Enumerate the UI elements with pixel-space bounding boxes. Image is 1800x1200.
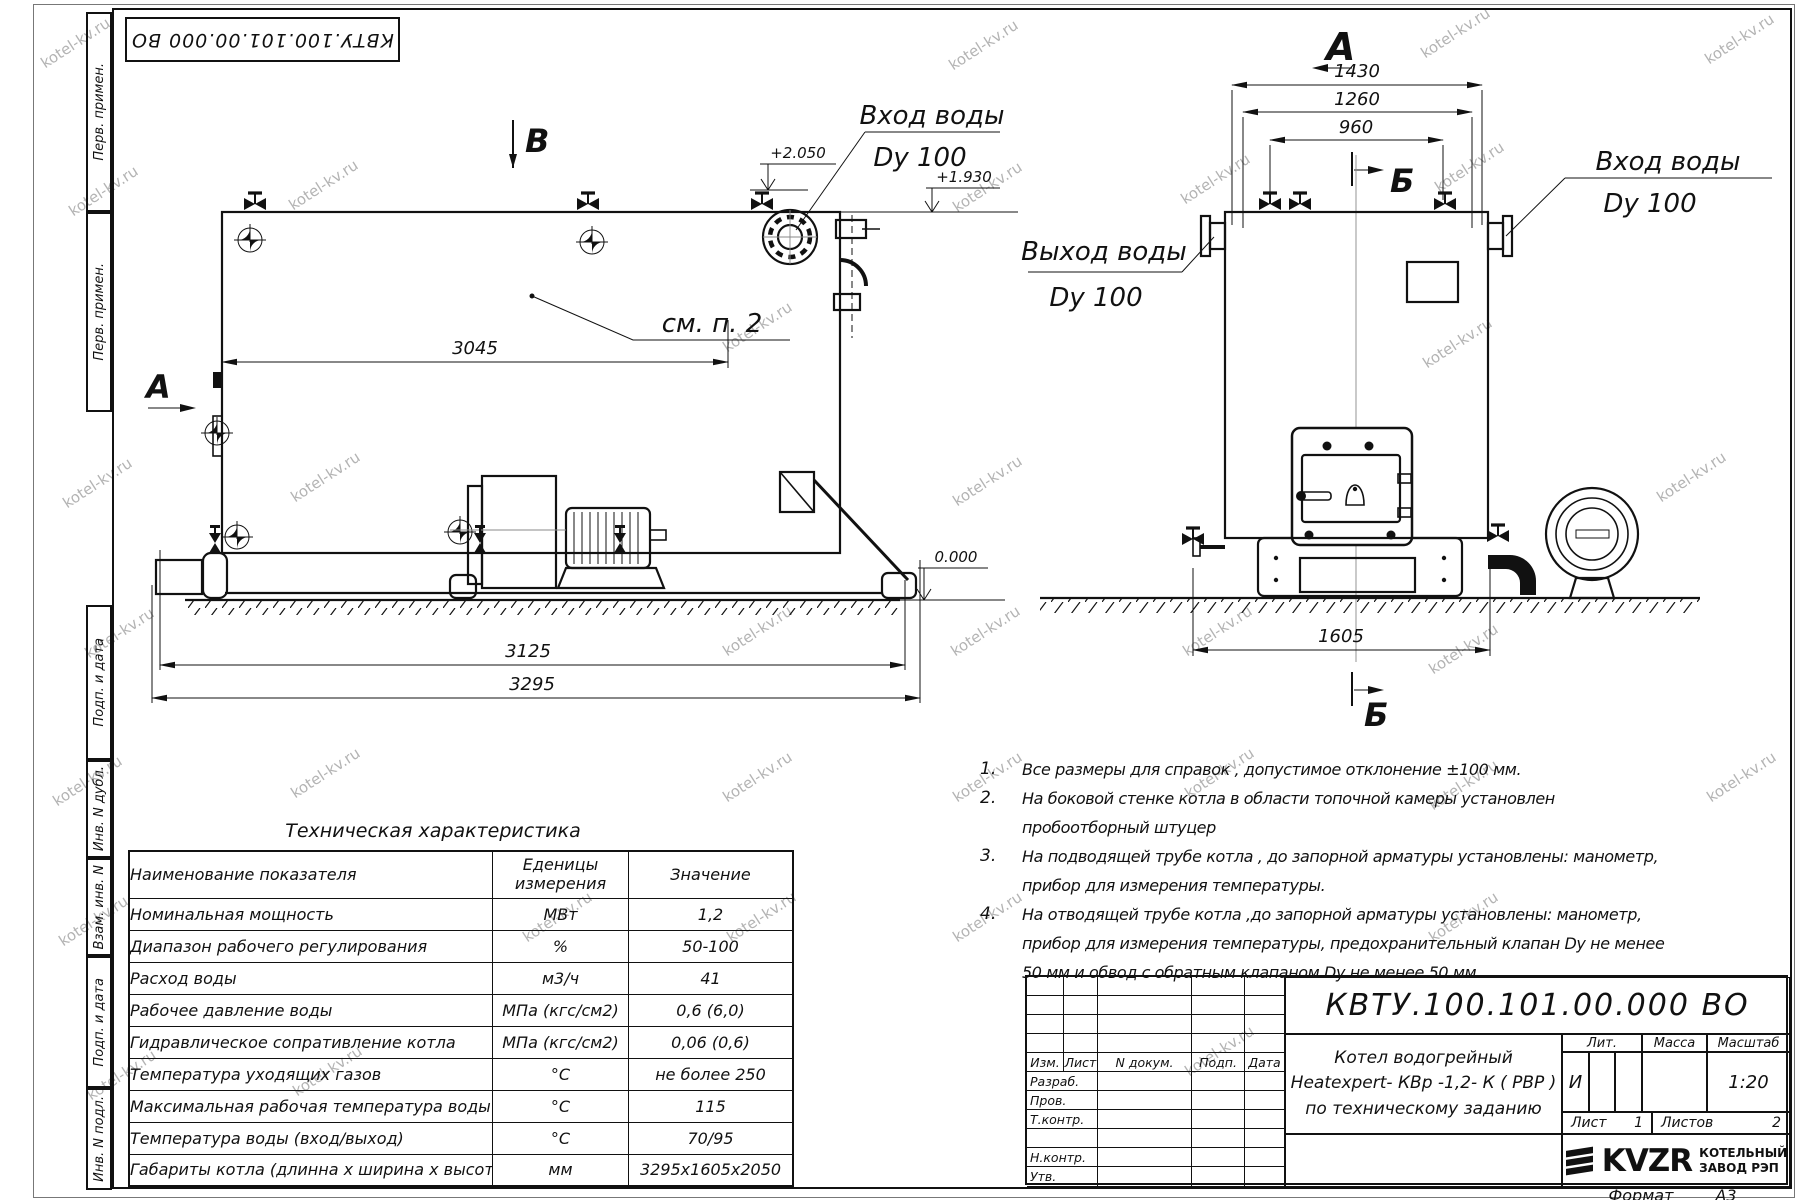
spec-header-row: Наименование показателя Еденицыизмерения…: [129, 851, 793, 898]
margin-box-vzam-inv: Взам. инв. N: [86, 858, 112, 956]
spec-cell: Температура воды (вход/выход): [129, 1122, 493, 1154]
spec-row: Температура уходящих газов °С не более 2…: [129, 1058, 793, 1090]
spec-cell: 3295х1605х2050: [629, 1154, 794, 1186]
col-izm: Изм.: [1027, 1053, 1064, 1072]
margin-box-inv-dubl: Инв. N дубл.: [86, 760, 112, 858]
sheets-label: Листов: [1661, 1115, 1713, 1131]
dim-3045: 3045: [452, 338, 498, 359]
dim-960: 960: [1339, 117, 1373, 138]
product-name-line1: Котел водогрейный: [1334, 1046, 1513, 1072]
product-name-line3: по техническому заданию: [1305, 1097, 1541, 1123]
view-arrow-icon: [180, 404, 196, 412]
spec-cell: мм: [493, 1154, 629, 1186]
level-2050: +2.050: [750, 144, 836, 190]
center-mark-icon: [576, 226, 608, 254]
spec-cell: Расход воды: [129, 962, 493, 994]
spec-cell: Температура уходящих газов: [129, 1058, 493, 1090]
spec-cell: МПа (кгс/см2): [493, 994, 629, 1026]
sheet-label: Лист: [1571, 1115, 1606, 1131]
scale-label: Масштаб: [1707, 1034, 1790, 1052]
spec-col-value: Значение: [629, 851, 794, 898]
note-item: 4. На отводящей трубе котла ,до запорной…: [980, 900, 1680, 987]
svg-text:+1.930: +1.930: [936, 168, 992, 186]
spec-cell: 0,06 (0,6): [629, 1026, 794, 1058]
pump-assembly: [450, 476, 666, 588]
note-item: 3. На подводящей трубе котла , до запорн…: [980, 842, 1680, 900]
svg-text:+2.050: +2.050: [770, 144, 826, 162]
margin-box-podp-data-2: Подп. и дата: [86, 956, 112, 1088]
sheet-value: 1: [1634, 1115, 1643, 1131]
top-valve-icon: [244, 193, 266, 210]
spec-cell: 0,6 (6,0): [629, 994, 794, 1026]
side-view-drawing: 3045 3125 3295 см. п. 2 В А Вход воды Dy…: [120, 80, 1020, 725]
svg-text:0.000: 0.000: [935, 548, 978, 566]
mass-value: [1642, 1052, 1707, 1112]
spec-cell: 50-100: [629, 930, 794, 962]
blower-fan: [1546, 488, 1638, 598]
format-word: Формат: [1608, 1186, 1673, 1200]
lit-cell: [1615, 1052, 1642, 1112]
spec-table: Наименование показателя Еденицыизмерения…: [128, 850, 794, 1187]
lit-cell: [1589, 1052, 1615, 1112]
spec-cell: Габариты котла (длинна х ширина х высота…: [129, 1154, 493, 1186]
drain-valve-icon: [209, 525, 221, 553]
section-b-label: В: [525, 122, 549, 160]
notes-block: 1. Все размеры для справок , допустимое …: [980, 755, 1680, 987]
section-arrow-icon: [1368, 166, 1384, 174]
spec-cell: 1,2: [629, 898, 794, 930]
fan-valve-icon: [1487, 525, 1509, 542]
spec-cell: Гидравлическое сопративление котла: [129, 1026, 493, 1058]
center-mark-icon: [201, 417, 233, 445]
dim-1605: 1605: [1318, 626, 1364, 647]
center-mark-icon: [221, 521, 253, 549]
col-data: Дата: [1245, 1053, 1285, 1072]
spec-cell: 115: [629, 1090, 794, 1122]
sheet-cell: Лист 1: [1562, 1112, 1652, 1134]
section-arrow-icon: [509, 154, 517, 168]
empty-box: [1285, 1134, 1562, 1187]
inlet-label: Вход воды: [859, 101, 1004, 131]
spec-cell: 70/95: [629, 1122, 794, 1154]
col-podp: Подп.: [1192, 1053, 1245, 1072]
product-name-line2: Heatexpert- КВр -1,2- К ( РВР ): [1291, 1071, 1557, 1097]
spec-cell: °С: [493, 1058, 629, 1090]
spec-cell: Максимальная рабочая температура воды: [129, 1090, 493, 1122]
corner-stamp-text: КВТУ.100.101.00.000 ВО: [131, 29, 394, 51]
outlet-label: Выход воды: [1021, 237, 1187, 267]
spec-cell: °С: [493, 1122, 629, 1154]
margin-box-podp-data-1: Подп. и дата: [86, 605, 112, 760]
elbow-pipe: [1488, 555, 1536, 595]
top-valve-icon: [1289, 193, 1311, 210]
motor: [566, 508, 650, 568]
spec-cell: °С: [493, 1090, 629, 1122]
top-valve-icon: [1434, 193, 1456, 210]
spec-cell: м3/ч: [493, 962, 629, 994]
role-tkontr: Т.контр.: [1027, 1110, 1098, 1129]
drawing-sheet: kotel-kv.ru kotel-kv.ru kotel-kv.ru kote…: [0, 0, 1800, 1200]
vent-hatch: [1407, 262, 1458, 302]
ground-hatch: [185, 600, 900, 615]
drain-valve-icon: [614, 525, 626, 553]
outlet-size-label: Dy 100: [1049, 283, 1142, 313]
spec-cell: %: [493, 930, 629, 962]
spec-row: Диапазон рабочего регулирования % 50-100: [129, 930, 793, 962]
margin-box-perv-primen-2: Перв. примен.: [86, 212, 112, 412]
format-value: А3: [1715, 1186, 1736, 1200]
col-ndoc: N докум.: [1098, 1053, 1192, 1072]
corner-stamp: КВТУ.100.101.00.000 ВО: [125, 17, 400, 62]
spec-cell: Диапазон рабочего регулирования: [129, 930, 493, 962]
spec-row: Рабочее давление воды МПа (кгс/см2) 0,6 …: [129, 994, 793, 1026]
note-item: 1. Все размеры для справок , допустимое …: [980, 755, 1680, 784]
note-item: 2. На боковой стенке котла в области топ…: [980, 784, 1680, 842]
logo-box: KVZR КОТЕЛЬНЫЙЗАВОД РЭП: [1562, 1134, 1790, 1187]
top-valve-icon: [577, 193, 599, 210]
title-block: Изм. Лист N докум. Подп. Дата Разраб. Пр…: [1025, 975, 1788, 1185]
ground-hatch: [1040, 598, 1700, 613]
lit-value: И: [1562, 1052, 1589, 1112]
spec-col-units: Еденицыизмерения: [493, 851, 629, 898]
spec-row: Номинальная мощность МВт 1,2: [129, 898, 793, 930]
format-label: Формат А3: [1555, 1186, 1790, 1200]
margin-box-perv-primen-1: Перв. примен.: [86, 12, 112, 212]
drain-valve-icon: [474, 525, 486, 553]
spec-cell: не более 250: [629, 1058, 794, 1090]
dim-3295: 3295: [509, 674, 555, 695]
spec-cell: 41: [629, 962, 794, 994]
sheets-cell: Листов 2: [1652, 1112, 1790, 1134]
role-utv: Утв.: [1027, 1167, 1098, 1187]
inlet-flange: [763, 210, 817, 264]
front-view-drawing: А 1430 1260 960 Б: [1000, 10, 1800, 730]
inlet-label-front: Вход воды: [1595, 147, 1740, 177]
lit-label: Лит.: [1562, 1034, 1642, 1052]
title-block-grid: Изм. Лист N докум. Подп. Дата Разраб. Пр…: [1027, 977, 1285, 1187]
spec-table-title: Техническая характеристика: [128, 820, 788, 842]
kvzr-logo-icon: [1565, 1143, 1595, 1179]
side-fitting: [213, 372, 222, 388]
spec-row: Расход воды м3/ч 41: [129, 962, 793, 994]
col-list: Лист: [1064, 1053, 1098, 1072]
doc-number: КВТУ.100.101.00.000 ВО: [1285, 977, 1790, 1034]
dim-1430: 1430: [1334, 61, 1380, 82]
note-text: На подводящей трубе котла , до запорной …: [1022, 842, 1672, 900]
spec-row: Гидравлическое сопративление котла МПа (…: [129, 1026, 793, 1058]
product-name: Котел водогрейный Heatexpert- КВр -1,2- …: [1285, 1034, 1562, 1134]
role-nkontr: Н.контр.: [1027, 1148, 1098, 1167]
section-b-top-label: Б: [1390, 162, 1414, 200]
scale-value: 1:20: [1707, 1052, 1790, 1112]
logo-subtext: КОТЕЛЬНЫЙЗАВОД РЭП: [1699, 1146, 1787, 1176]
leader-inlet-front: [1506, 178, 1565, 236]
spec-cell: МПа (кгс/см2): [493, 1026, 629, 1058]
note-number: 1.: [980, 755, 1022, 784]
section-arrow-icon: [1368, 686, 1384, 694]
spec-cell: Рабочее давление воды: [129, 994, 493, 1026]
margin-box-inv-podl: Инв. N подл.: [86, 1088, 112, 1190]
spec-row: Габариты котла (длинна х ширина х высота…: [129, 1154, 793, 1186]
logo-text: KVZR: [1602, 1143, 1692, 1179]
role-prov: Пров.: [1027, 1091, 1098, 1110]
level-1930: +1.930: [838, 168, 1018, 212]
spec-cell: МВт: [493, 898, 629, 930]
view-a-label: А: [143, 368, 171, 406]
inlet-size-label-front: Dy 100: [1603, 189, 1696, 219]
spec-col-name: Наименование показателя: [129, 851, 493, 898]
spec-cell: Номинальная мощность: [129, 898, 493, 930]
role-razrab: Разраб.: [1027, 1072, 1098, 1091]
see-note-label: см. п. 2: [662, 309, 763, 339]
dim-3125: 3125: [505, 641, 551, 662]
base-frame-front: [1258, 538, 1462, 596]
inlet-flange-front: [1488, 223, 1503, 249]
section-b-bottom-label: Б: [1364, 696, 1388, 730]
furnace-door: [1292, 428, 1412, 545]
level-zero: 0.000: [917, 548, 988, 600]
note-text: На отводящей трубе котла ,до запорной ар…: [1022, 900, 1672, 987]
note-text: Все размеры для справок , допустимое отк…: [1022, 755, 1672, 784]
spec-row: Температура воды (вход/выход) °С 70/95: [129, 1122, 793, 1154]
mass-label: Масса: [1642, 1034, 1707, 1052]
base-frame: [156, 472, 916, 598]
spec-row: Максимальная рабочая температура воды °С…: [129, 1090, 793, 1122]
top-valve-icon: [1259, 193, 1281, 210]
note-text: На боковой стенке котла в области топочн…: [1022, 784, 1672, 842]
sheets-value: 2: [1772, 1115, 1781, 1131]
note-number: 4.: [980, 900, 1022, 987]
center-mark-icon: [234, 224, 266, 252]
note-number: 2.: [980, 784, 1022, 842]
note-number: 3.: [980, 842, 1022, 900]
top-valve-icon: [751, 193, 773, 210]
dim-1260: 1260: [1334, 89, 1380, 110]
boiler-body-side: [222, 212, 840, 553]
